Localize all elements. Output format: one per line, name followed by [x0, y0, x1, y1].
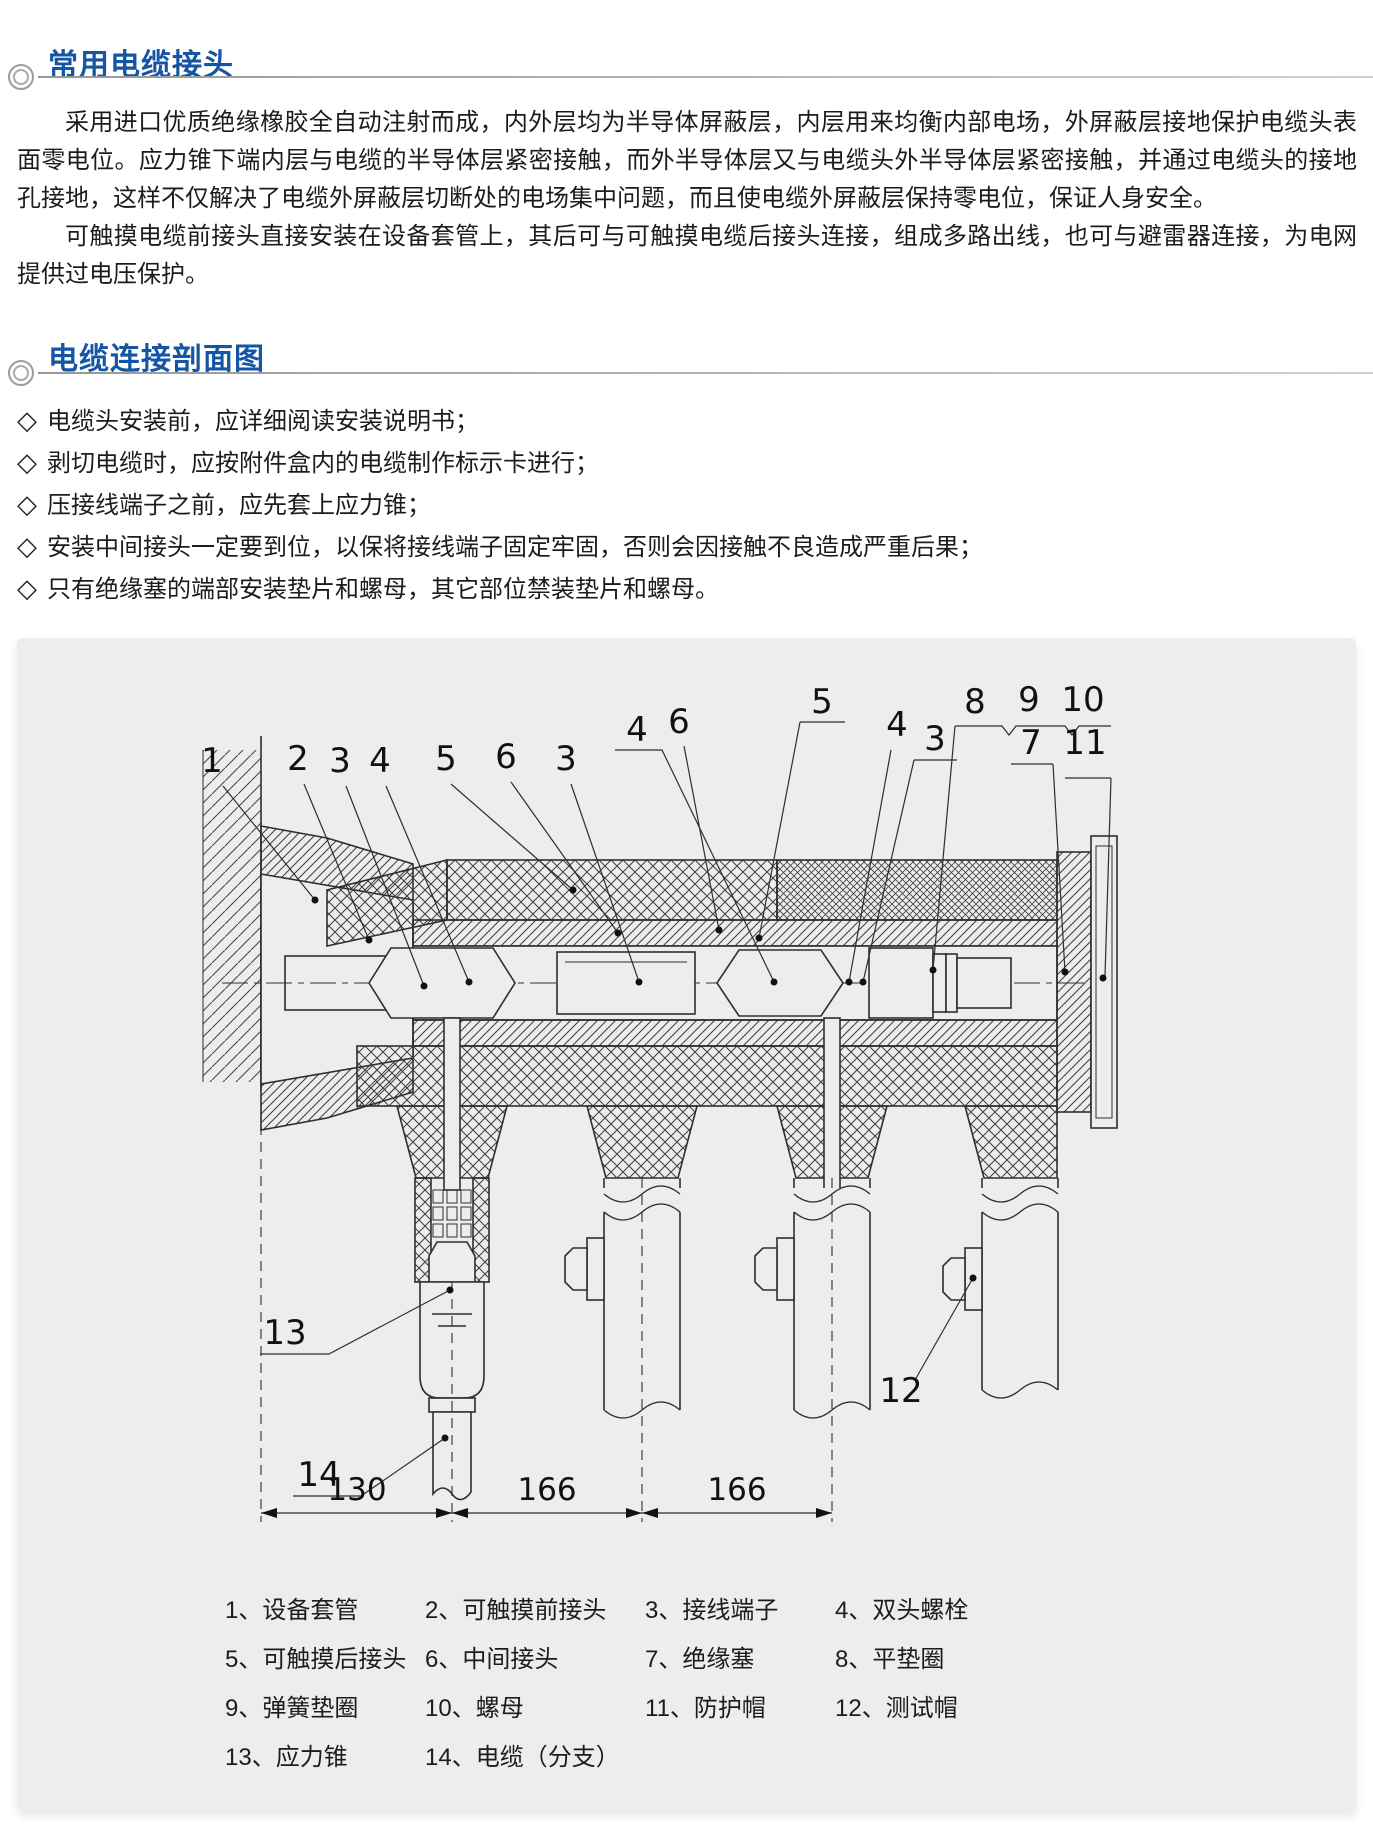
insulation-band-top: [413, 920, 1057, 946]
legend-item-14: 14、电缆（分支）: [425, 1737, 645, 1772]
branch-cable-4: [943, 1178, 1062, 1398]
callout-number: 6: [668, 702, 690, 742]
note-item: ◇只有绝缘塞的端部安装垫片和螺母，其它部位禁装垫片和螺母。: [17, 568, 1357, 610]
paragraph-1: 采用进口优质绝缘橡胶全自动注射而成，内外层均为半导体屏蔽层，内层用来均衡内部电场…: [17, 104, 1357, 218]
dimension-value: 130: [327, 1472, 386, 1508]
legend-item-9: 9、弹簧垫圈: [225, 1688, 425, 1723]
dimension-value: 166: [707, 1472, 766, 1508]
rule-line: [38, 76, 1373, 78]
note-text: 安装中间接头一定要到位，以保将接线端子固定牢固，否则会因接触不良造成严重后果；: [47, 528, 983, 568]
diamond-bullet-icon: ◇: [17, 400, 37, 440]
test-cap-shell: [1091, 836, 1117, 1128]
branch-cable-2: [565, 1178, 684, 1522]
elastomer-band-lower: [357, 1046, 1057, 1106]
callout-number: 4: [369, 741, 391, 781]
contact-tab-1: [444, 1018, 460, 1190]
ring-ornament-icon: [8, 360, 34, 386]
callout-number: 3: [924, 719, 946, 759]
elastomer-band-front: [447, 860, 777, 920]
note-item: ◇电缆头安装前，应详细阅读安装说明书；: [17, 400, 1357, 442]
contact-tab-2: [824, 1018, 840, 1190]
legend-item-7: 7、绝缘塞: [645, 1639, 835, 1674]
paragraph-2: 可触摸电缆前接头直接安装在设备套管上，其后可与可触摸电缆后接头连接，组成多路出线…: [17, 218, 1357, 294]
protective-cap-plate: [1057, 852, 1091, 1112]
note-text: 电缆头安装前，应详细阅读安装说明书；: [47, 402, 479, 442]
diagram-legend: 1、设备套管2、可触摸前接头3、接线端子4、双头螺栓5、可触摸后接头6、中间接头…: [225, 1590, 1055, 1772]
callout-number: 4: [886, 705, 908, 745]
diamond-bullet-icon: ◇: [17, 568, 37, 608]
legend-item-10: 10、螺母: [425, 1688, 645, 1723]
insulating-plug: [957, 958, 1011, 1008]
main-assembly: [327, 860, 1057, 1178]
callout-number: 8: [964, 682, 986, 722]
title-rule-2: [0, 358, 1373, 388]
diagram-panel: 1234563465438910711121314 130166166 1、设备…: [17, 638, 1356, 1812]
spring-washer: [946, 954, 957, 1012]
tee-boot-4: [965, 1106, 1057, 1178]
callout-number: 12: [879, 1371, 922, 1411]
cable-terminal: [557, 952, 695, 1014]
callout-number: 6: [495, 737, 517, 777]
callout-number: 7: [1020, 723, 1042, 763]
callout-number: 13: [263, 1313, 306, 1353]
legend-item-13: 13、应力锥: [225, 1737, 425, 1772]
legend-item-11: 11、防护帽: [645, 1688, 835, 1723]
ring-ornament-icon: [8, 64, 34, 90]
legend-item-5: 5、可触摸后接头: [225, 1639, 425, 1674]
earthing-clamp: [777, 1238, 794, 1300]
title-rule: [0, 62, 1373, 92]
note-text: 只有绝缘塞的端部安装垫片和螺母，其它部位禁装垫片和螺母。: [47, 570, 719, 610]
intro-paragraphs: 采用进口优质绝缘橡胶全自动注射而成，内外层均为半导体屏蔽层，内层用来均衡内部电场…: [17, 104, 1357, 294]
legend-item-2: 2、可触摸前接头: [425, 1590, 645, 1625]
branch-cable-3: [755, 1178, 874, 1522]
clamp-bolt: [943, 1258, 965, 1300]
legend-item-8: 8、平垫圈: [835, 1639, 1055, 1674]
clamp-bolt: [565, 1248, 587, 1290]
clamp-bolt: [755, 1248, 777, 1290]
flat-washer: [933, 954, 946, 1012]
lug-body: [429, 1242, 475, 1282]
dimension-lines: [261, 1508, 832, 1518]
ring-inner: [13, 365, 29, 381]
diamond-bullet-icon: ◇: [17, 484, 37, 524]
callout-number: 11: [1063, 723, 1106, 763]
rule-line: [38, 372, 1373, 374]
stud-bolt-1: [369, 948, 515, 1018]
note-text: 压接线端子之前，应先套上应力锥；: [47, 486, 431, 526]
terminal-lug-grid: [433, 1190, 471, 1237]
branch-cable-1: [415, 1178, 489, 1522]
legend-item-1: 1、设备套管: [225, 1590, 425, 1625]
installation-notes-list: ◇电缆头安装前，应详细阅读安装说明书； ◇剥切电缆时，应按附件盒内的电缆制作标示…: [17, 400, 1357, 610]
note-item: ◇安装中间接头一定要到位，以保将接线端子固定牢固，否则会因接触不良造成严重后果；: [17, 526, 1357, 568]
dimension-value: 166: [517, 1472, 576, 1508]
callout-number: 2: [287, 739, 309, 779]
dimension-labels: 130166166: [327, 1472, 766, 1508]
nut: [869, 948, 933, 1018]
diamond-bullet-icon: ◇: [17, 526, 37, 566]
note-text: 剥切电缆时，应按附件盒内的电缆制作标示卡进行；: [47, 444, 599, 484]
document-page: 常用电缆接头 采用进口优质绝缘橡胶全自动注射而成，内外层均为半导体屏蔽层，内层用…: [0, 0, 1373, 1848]
legend-item-4: 4、双头螺栓: [835, 1590, 1055, 1625]
insulation-band-bottom: [413, 1020, 1057, 1046]
callout-number: 3: [555, 739, 577, 779]
callout-number: 10: [1061, 680, 1104, 720]
legend-item-12: 12、测试帽: [835, 1688, 1055, 1723]
elastomer-band-rear: [777, 860, 1057, 920]
callout-number: 5: [435, 739, 457, 779]
tee-boot-2: [587, 1106, 697, 1178]
mounting-wall: [203, 736, 261, 1522]
stud-bolt-2: [717, 950, 843, 1016]
callout-number: 9: [1018, 680, 1040, 720]
earthing-clamp: [587, 1238, 604, 1300]
callout-number: 1: [201, 741, 223, 781]
legend-item-3: 3、接线端子: [645, 1590, 835, 1625]
diamond-bullet-icon: ◇: [17, 442, 37, 482]
callout-number: 4: [626, 710, 648, 750]
legend-item-6: 6、中间接头: [425, 1639, 645, 1674]
ring-inner: [13, 69, 29, 85]
note-item: ◇压接线端子之前，应先套上应力锥；: [17, 484, 1357, 526]
note-item: ◇剥切电缆时，应按附件盒内的电缆制作标示卡进行；: [17, 442, 1357, 484]
callout-number: 5: [811, 682, 833, 722]
callout-number: 3: [329, 741, 351, 781]
